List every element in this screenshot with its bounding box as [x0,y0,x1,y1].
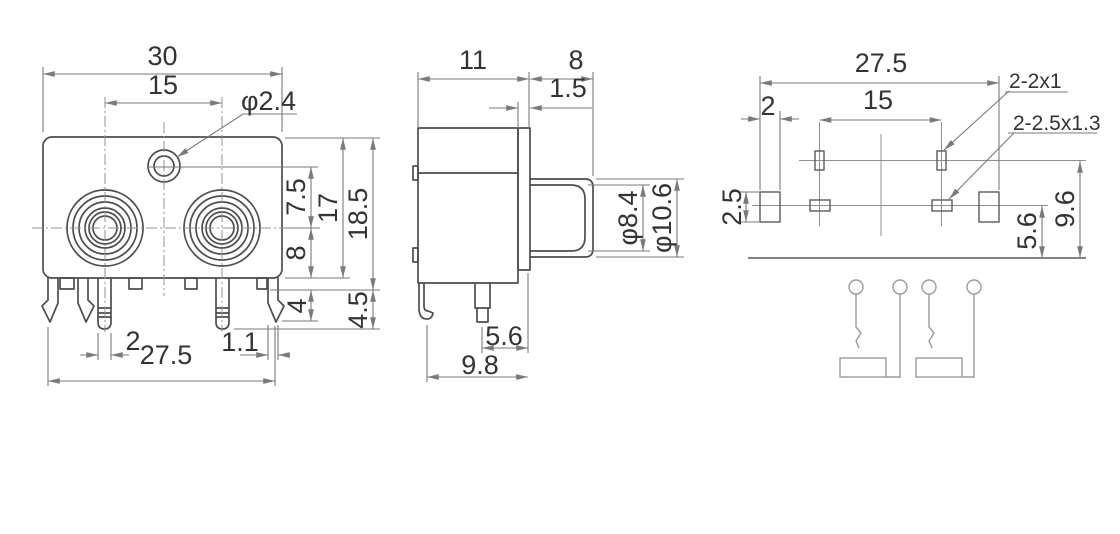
dim-front-overall-height: 18.5 [343,188,373,241]
dim-pcb-pad-pitch: 15 [863,85,893,115]
dim-front-leg-span: 27.5 [140,340,193,370]
dim-side-barrel-length: 8 [568,45,583,75]
ground-lead-left [886,294,900,377]
side-pin [475,283,490,322]
terminal-circle [967,280,981,294]
dim-side-barrel-inner-dia: φ8.4 [613,190,643,245]
front-leg-left-prong1 [42,278,58,322]
front-centerlines [32,97,295,332]
side-hook-leg [419,283,433,319]
dim-pcb-edge-offset: 2 [760,91,775,121]
dim-front-body-width: 30 [147,41,177,71]
dim-front-center-to-bottom: 8 [281,245,311,260]
pcb-anchor-hole-left [760,192,780,222]
terminal-circle [922,280,936,294]
label-pcb-slot-small: 2-2x1 [1009,70,1062,93]
drawing-svg: 30 15 φ2.4 7.5 8 17 18.5 4 4.5 2 1.1 27.… [0,0,1120,534]
side-front-plate [518,128,530,270]
dim-front-hole-to-center: 7.5 [281,178,311,216]
dim-pcb-row-offset: 5.6 [1012,212,1042,250]
dim-front-leg-overall: 4.5 [343,291,373,329]
switch-contact-right [929,294,934,348]
slot-large-leader [949,133,1097,199]
dim-side-panel-step: 1.5 [549,73,587,103]
dim-pcb-edge-to-row: 9.6 [1050,190,1080,228]
front-view: 30 15 φ2.4 7.5 8 17 18.5 4 4.5 2 1.1 27.… [32,41,380,386]
dim-front-tab-thickness: 1.1 [221,327,259,357]
ground-lead-right [962,294,974,377]
hole-leader-line [177,114,297,157]
contact-block-right [916,358,962,377]
dim-front-jack-pitch: 15 [148,70,178,100]
side-tab [413,166,418,180]
side-dim-lines [418,72,684,382]
pcb-dim-lines [739,76,1097,258]
side-body [418,128,518,283]
side-tab [413,248,418,262]
dim-front-hole-dia: φ2.4 [241,86,296,116]
front-stub [185,278,197,289]
pcb-layout-view: 27.5 2 15 2-2x1 2-2.5x1.3 2.5 9.6 5.6 [717,48,1101,377]
contact-block-left [840,358,886,377]
dim-side-pin-to-front: 5.6 [485,321,523,351]
dim-pcb-hole-span: 27.5 [855,48,908,78]
terminal-circle [893,280,907,294]
side-view: 11 8 1.5 φ8.4 φ10.6 5.6 9.8 [413,45,684,382]
technical-drawing: 30 15 φ2.4 7.5 8 17 18.5 4 4.5 2 1.1 27.… [0,0,1120,534]
dim-side-overall-depth: 9.8 [461,350,499,380]
side-barrel-inner [530,185,585,251]
dim-side-barrel-outer-dia: φ10.6 [647,183,677,253]
wiring-schematic [840,280,981,377]
dim-side-body-depth: 11 [459,45,487,75]
terminal-circle [849,280,863,294]
dim-front-pin-width: 2 [125,326,140,356]
front-stub [60,278,74,289]
dim-front-leg-length: 4 [282,298,312,313]
front-leg-left-prong2 [78,278,94,322]
front-stub [129,278,142,289]
front-stub [257,278,267,289]
dim-front-body-height: 17 [313,193,343,223]
label-pcb-slot-large: 2-2.5x1.3 [1013,112,1101,135]
dim-pcb-anchor-height: 2.5 [717,188,747,226]
side-body-outline [413,128,593,322]
switch-contact-left [856,294,861,348]
front-body-outline [42,137,284,329]
pcb-anchor-hole-right [979,192,999,222]
